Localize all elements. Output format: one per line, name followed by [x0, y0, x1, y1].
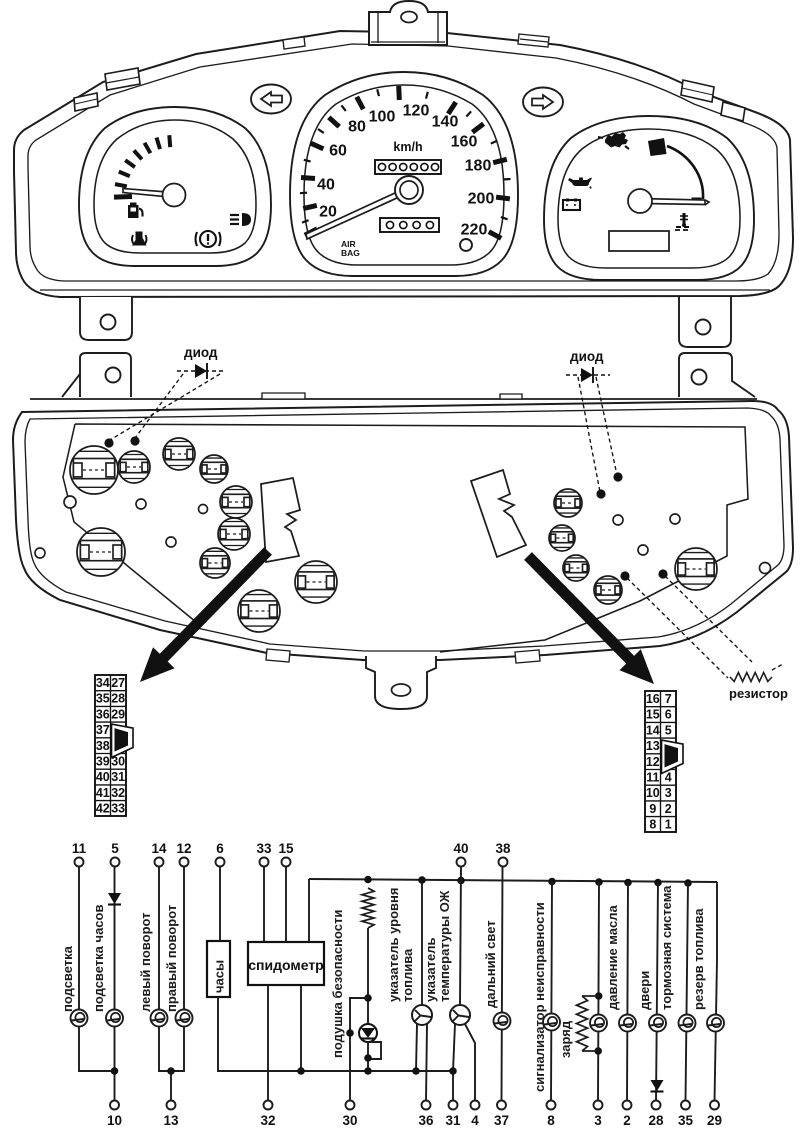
svg-text:11: 11 — [646, 771, 659, 785]
svg-text:30: 30 — [342, 1113, 357, 1128]
svg-text:16: 16 — [646, 692, 660, 706]
svg-text:220: 220 — [461, 222, 488, 239]
svg-text:5: 5 — [111, 841, 119, 856]
svg-text:200: 200 — [468, 191, 495, 208]
svg-text:спидометр: спидометр — [248, 957, 323, 973]
svg-text:41: 41 — [96, 786, 110, 800]
svg-text:32: 32 — [111, 786, 125, 800]
svg-text:37: 37 — [96, 723, 110, 737]
svg-text:15: 15 — [278, 841, 294, 856]
svg-text:резерв топлива: резерв топлива — [691, 908, 706, 1010]
svg-text:14: 14 — [646, 723, 660, 737]
svg-text:40: 40 — [317, 177, 335, 194]
svg-text:температуры ОЖ: температуры ОЖ — [437, 890, 452, 1002]
svg-text:80: 80 — [348, 119, 366, 136]
svg-text:37: 37 — [494, 1113, 509, 1128]
svg-text:3: 3 — [594, 1113, 602, 1128]
svg-text:1: 1 — [665, 818, 672, 832]
svg-text:29: 29 — [111, 707, 125, 721]
svg-text:заряд: заряд — [558, 1020, 573, 1058]
svg-text:топлива: топлива — [400, 948, 415, 1002]
svg-text:подсветка: подсветка — [60, 945, 75, 1012]
svg-text:4: 4 — [665, 771, 672, 785]
svg-text:29: 29 — [707, 1113, 722, 1128]
svg-text:28: 28 — [648, 1113, 664, 1128]
svg-text:35: 35 — [96, 692, 110, 706]
svg-text:31: 31 — [445, 1113, 461, 1128]
svg-text:9: 9 — [649, 802, 656, 816]
svg-text:14: 14 — [151, 841, 167, 856]
svg-text:32: 32 — [260, 1113, 275, 1128]
svg-text:правый поворот: правый поворот — [164, 905, 179, 1012]
svg-text:15: 15 — [646, 708, 660, 722]
svg-text:тормозная система: тормозная система — [659, 885, 674, 1010]
svg-text:60: 60 — [329, 143, 347, 160]
svg-text:38: 38 — [495, 841, 511, 856]
svg-text:140: 140 — [432, 114, 459, 131]
svg-text:дальний свет: дальний свет — [483, 920, 498, 1008]
svg-text:давление масла: давление масла — [605, 905, 620, 1010]
svg-text:6: 6 — [665, 708, 672, 722]
svg-text:36: 36 — [418, 1113, 434, 1128]
svg-text:двери: двери — [637, 971, 652, 1010]
svg-text:8: 8 — [547, 1113, 555, 1128]
svg-text:диод: диод — [570, 349, 604, 364]
svg-text:6: 6 — [216, 841, 224, 856]
svg-text:левый поворот: левый поворот — [138, 913, 153, 1013]
svg-text:33: 33 — [256, 841, 272, 856]
svg-text:резистор: резистор — [729, 686, 788, 701]
svg-text:180: 180 — [465, 158, 492, 175]
svg-text:указатель уровня: указатель уровня — [386, 888, 401, 1002]
svg-text:39: 39 — [96, 755, 110, 769]
svg-text:часы: часы — [212, 960, 227, 993]
svg-text:2: 2 — [665, 802, 672, 816]
svg-text:10: 10 — [107, 1113, 122, 1128]
svg-text:27: 27 — [111, 676, 125, 690]
svg-text:40: 40 — [96, 770, 110, 784]
svg-text:13: 13 — [646, 739, 660, 753]
svg-text:34: 34 — [96, 676, 110, 690]
svg-text:km/h: km/h — [393, 140, 422, 154]
svg-text:2: 2 — [623, 1113, 631, 1128]
svg-text:40: 40 — [453, 841, 468, 856]
svg-text:36: 36 — [96, 707, 110, 721]
svg-text:28: 28 — [111, 692, 125, 706]
svg-text:подушка безопасности: подушка безопасности — [330, 910, 345, 1058]
svg-text:100: 100 — [369, 109, 396, 126]
svg-text:13: 13 — [163, 1113, 179, 1128]
svg-text:11: 11 — [72, 841, 87, 856]
svg-text:31: 31 — [111, 770, 125, 784]
svg-text:12: 12 — [646, 755, 660, 769]
svg-text:160: 160 — [451, 134, 478, 151]
svg-text:диод: диод — [184, 345, 218, 360]
svg-text:12: 12 — [176, 841, 191, 856]
svg-text:35: 35 — [678, 1113, 694, 1128]
svg-text:3: 3 — [665, 786, 672, 800]
svg-text:8: 8 — [649, 818, 656, 832]
svg-text:10: 10 — [646, 786, 660, 800]
svg-text:42: 42 — [96, 802, 110, 816]
svg-text:сигнализатор неисправности: сигнализатор неисправности — [532, 902, 547, 1092]
svg-text:подсветка часов: подсветка часов — [91, 905, 106, 1012]
svg-text:указатель: указатель — [423, 937, 438, 1002]
svg-text:BAG: BAG — [341, 248, 360, 258]
svg-text:120: 120 — [403, 103, 430, 120]
svg-text:4: 4 — [471, 1113, 479, 1128]
svg-text:20: 20 — [319, 204, 337, 221]
svg-text:33: 33 — [111, 802, 125, 816]
svg-text:7: 7 — [665, 692, 672, 706]
svg-text:38: 38 — [96, 739, 110, 753]
svg-text:5: 5 — [665, 723, 672, 737]
